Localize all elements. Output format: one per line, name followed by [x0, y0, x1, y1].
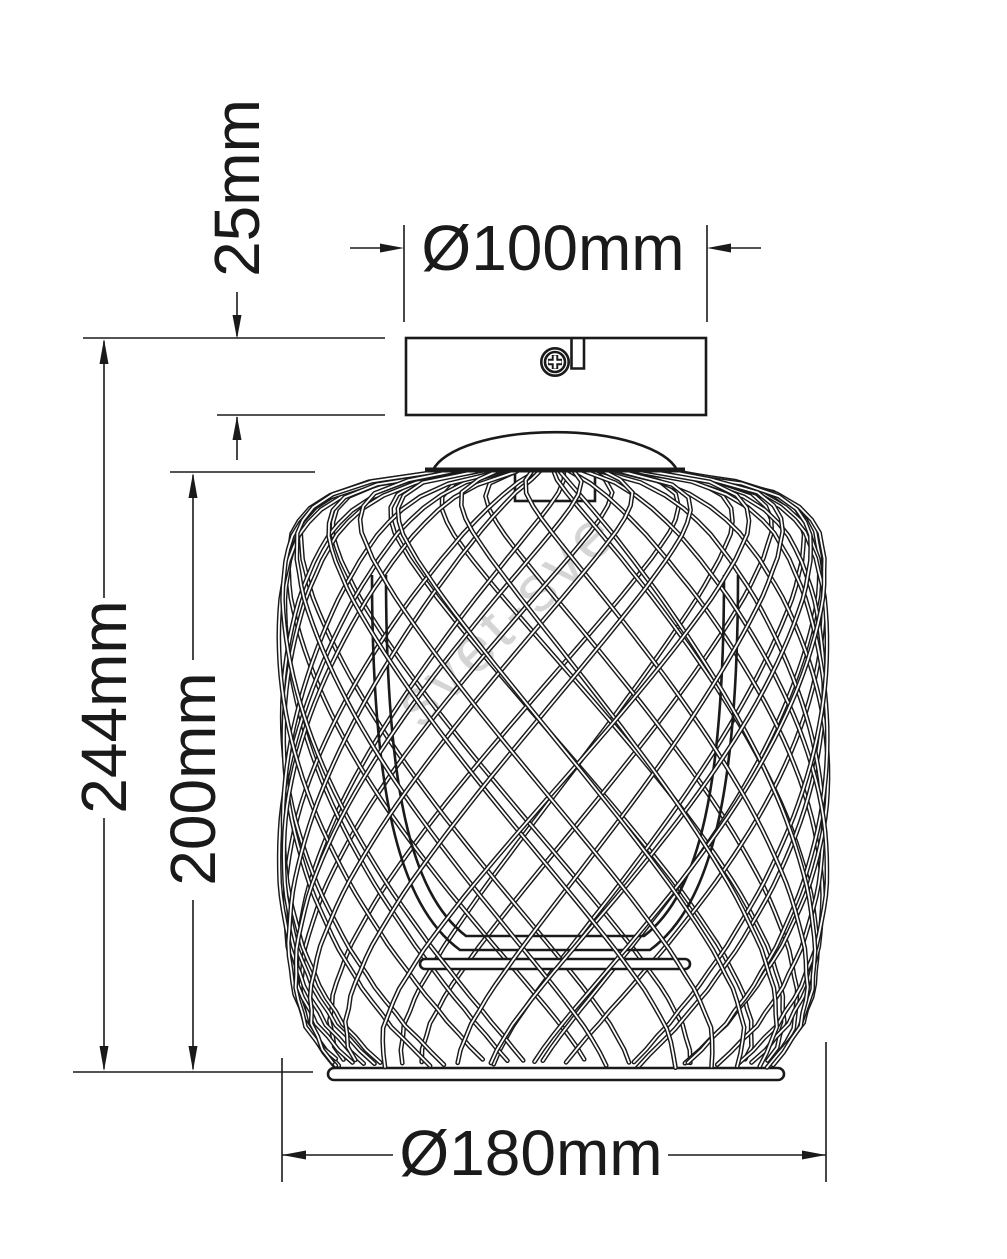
canopy-diameter-label: Ø100mm: [421, 212, 684, 284]
connector-dome: [433, 432, 677, 470]
technical-drawing-page: svet-sve 25mm: [0, 0, 1007, 1259]
shade-diameter-label: Ø180mm: [399, 1117, 662, 1189]
dimension-overall-height: 244mm: [68, 339, 140, 1071]
dimension-canopy-diameter: Ø100mm: [350, 212, 761, 284]
ceiling-lamp-dimension-drawing: svet-sve 25mm: [0, 0, 1007, 1259]
dimension-canopy-height: 25mm: [201, 99, 273, 460]
bottom-ring: [328, 1068, 784, 1080]
dimension-shade-diameter: Ø180mm: [282, 1117, 826, 1189]
shade-height-label: 200mm: [157, 672, 229, 885]
dimension-shade-height: 200mm: [157, 473, 229, 1071]
canopy-height-label: 25mm: [201, 99, 273, 277]
overall-height-label: 244mm: [68, 600, 140, 813]
